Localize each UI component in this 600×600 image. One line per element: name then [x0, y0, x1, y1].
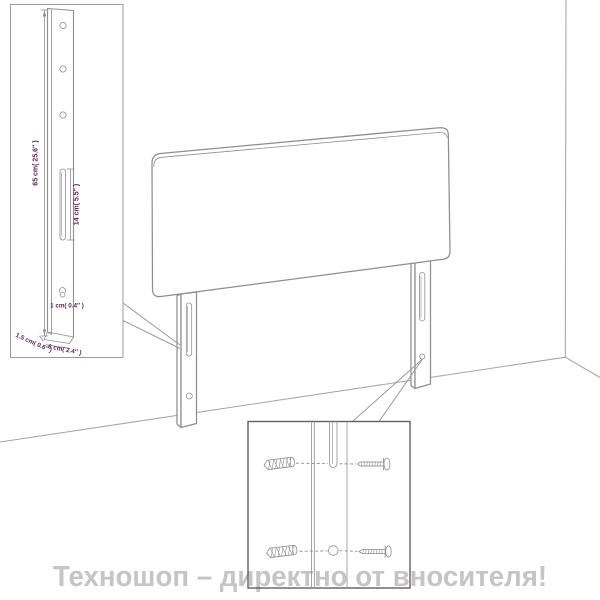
leg-hole [60, 66, 66, 72]
leg-slot [420, 273, 425, 322]
leg-slot [186, 303, 191, 356]
detail-hole [329, 546, 339, 556]
screw-icon [358, 458, 390, 470]
detail-leg-column [312, 422, 347, 589]
headboard-leg-right [411, 260, 431, 388]
line-art: 65 cm( 25.6″ ) 14 cm( 5.5″ ) 1 cm( 0.4″ … [0, 0, 600, 600]
floor-lines [0, 357, 600, 442]
arrowhead-up [43, 11, 46, 17]
inset-leg-drawing [44, 9, 74, 344]
leg-hole [420, 354, 425, 359]
leg-hole [60, 112, 66, 118]
leader-lines-left-inset [123, 303, 180, 349]
leg-hole [186, 393, 192, 399]
inset-leg-dimensions: 65 cm( 25.6″ ) 14 cm( 5.5″ ) 1 cm( 0.4″ … [11, 5, 124, 358]
screw-head [386, 546, 392, 557]
dimension-hole: 1 cm( 0.4″ ) [50, 288, 84, 310]
panel-front-face [152, 128, 450, 297]
headboard-panel [152, 128, 450, 297]
screw-icon [359, 546, 391, 557]
detail-slot [330, 422, 337, 468]
slot-dimension-label: 14 cm( 5.5″ ) [74, 184, 81, 225]
wall-corner-line [565, 0, 566, 357]
wall-anchor-icon [266, 545, 297, 558]
alignment-dashed-lines [296, 463, 358, 551]
dimension-height: 65 cm( 25.6″ ) [33, 10, 49, 336]
arrowhead-down [43, 330, 46, 336]
leg-hole [60, 292, 65, 297]
thickness-dimension-label: 1.5 cm( 0.6″ ) [14, 332, 53, 354]
height-dimension-label: 65 cm( 25.6″ ) [33, 140, 40, 185]
wall-anchor-icon [264, 457, 295, 470]
leader-lines-bottom-inset [353, 359, 423, 422]
width-dimension-label: 6 cm( 2.4″ ) [48, 343, 83, 356]
screw-head [384, 458, 390, 470]
hole-dimension-label: 1 cm( 0.4″ ) [50, 303, 84, 310]
leg-base [44, 332, 74, 344]
detail-box [248, 422, 410, 589]
leg-slot [60, 169, 66, 240]
product-diagram-headboard: Техношоп – директно от вносителя! [0, 0, 600, 600]
leg-hole [60, 22, 66, 28]
inset-mounting-detail [248, 422, 410, 589]
headboard-leg-left [177, 292, 197, 428]
